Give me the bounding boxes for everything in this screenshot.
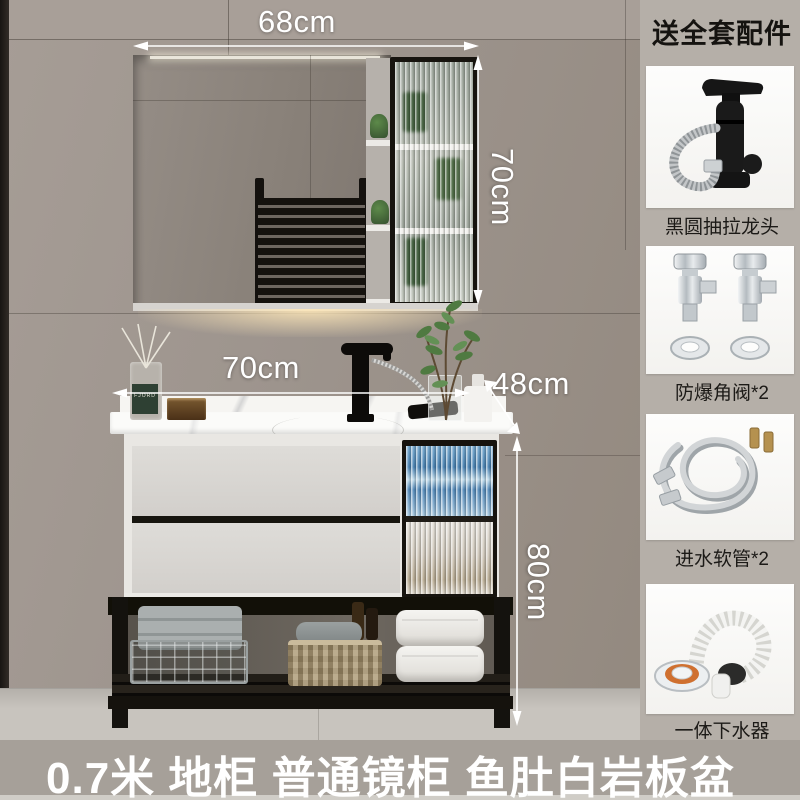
wall-dark-edge <box>0 0 9 740</box>
accessory-label-angle-valves: 防爆角阀*2 <box>644 378 800 405</box>
towel-radiator-reflection <box>258 198 365 308</box>
dimension-label-mirror-width: 68cm <box>258 4 336 40</box>
open-shelf <box>366 225 392 231</box>
stand-front-rail <box>108 696 513 709</box>
vanity-drawer-bottom <box>132 523 400 593</box>
accessory-label-drain: 一体下水器 <box>644 716 800 743</box>
product-image: FJORD <box>0 0 800 800</box>
shelf-plant <box>371 200 389 224</box>
faucet-icon <box>646 66 794 208</box>
accessory-label-inlet-hoses: 进水软管*2 <box>644 544 800 571</box>
wall-tile-seam <box>505 455 640 456</box>
accessory-card-inlet-hoses <box>646 414 794 540</box>
diffuser-reeds <box>108 322 178 370</box>
wire-basket <box>130 640 248 684</box>
woven-basket <box>288 640 382 686</box>
accessory-card-faucet <box>646 66 794 208</box>
drawer-handle-recess <box>132 516 400 523</box>
wall-tile-seam <box>625 0 626 250</box>
folded-white-towel <box>396 646 484 682</box>
mirror-reflection-seam <box>133 100 390 101</box>
amber-tray <box>167 398 206 420</box>
accessory-label-faucet: 黑圆抽拉龙头 <box>644 212 800 239</box>
dimension-label-vanity-height: 80cm <box>520 543 556 621</box>
dimension-label-mirror-height: 70cm <box>484 148 520 226</box>
dimension-arrow-vanity-width <box>112 386 470 400</box>
inlet-hoses-icon <box>646 414 794 540</box>
open-shelf <box>366 140 392 146</box>
product-headline: 0.7米 地柜 普通镜柜 鱼肚白岩板盆 <box>46 742 786 800</box>
fluted-glass-texture <box>406 446 493 516</box>
accessory-card-angle-valves <box>646 246 794 374</box>
dimension-arrow-mirror-width <box>133 39 479 53</box>
fluted-glass-texture <box>395 62 473 302</box>
angle-valves-icon <box>646 246 794 374</box>
folded-white-towel <box>396 610 484 646</box>
drain-icon <box>646 584 794 714</box>
bottle <box>366 608 378 640</box>
shelf-plant <box>370 114 388 138</box>
sidebar-title: 送全套配件 <box>644 12 800 51</box>
dimension-arrow-vanity-depth <box>479 376 525 438</box>
dimension-arrow-vanity-height <box>510 436 524 726</box>
dimension-label-vanity-width: 70cm <box>222 350 300 386</box>
vanity-drawer-top <box>132 446 400 516</box>
dimension-arrow-mirror-height <box>471 55 485 305</box>
open-shelf-column <box>366 58 392 308</box>
fluted-glass-texture <box>406 522 493 594</box>
mirror-led-strip <box>150 56 380 59</box>
accessory-card-drain <box>646 584 794 714</box>
mirror-cabinet-glass-door <box>390 57 478 307</box>
